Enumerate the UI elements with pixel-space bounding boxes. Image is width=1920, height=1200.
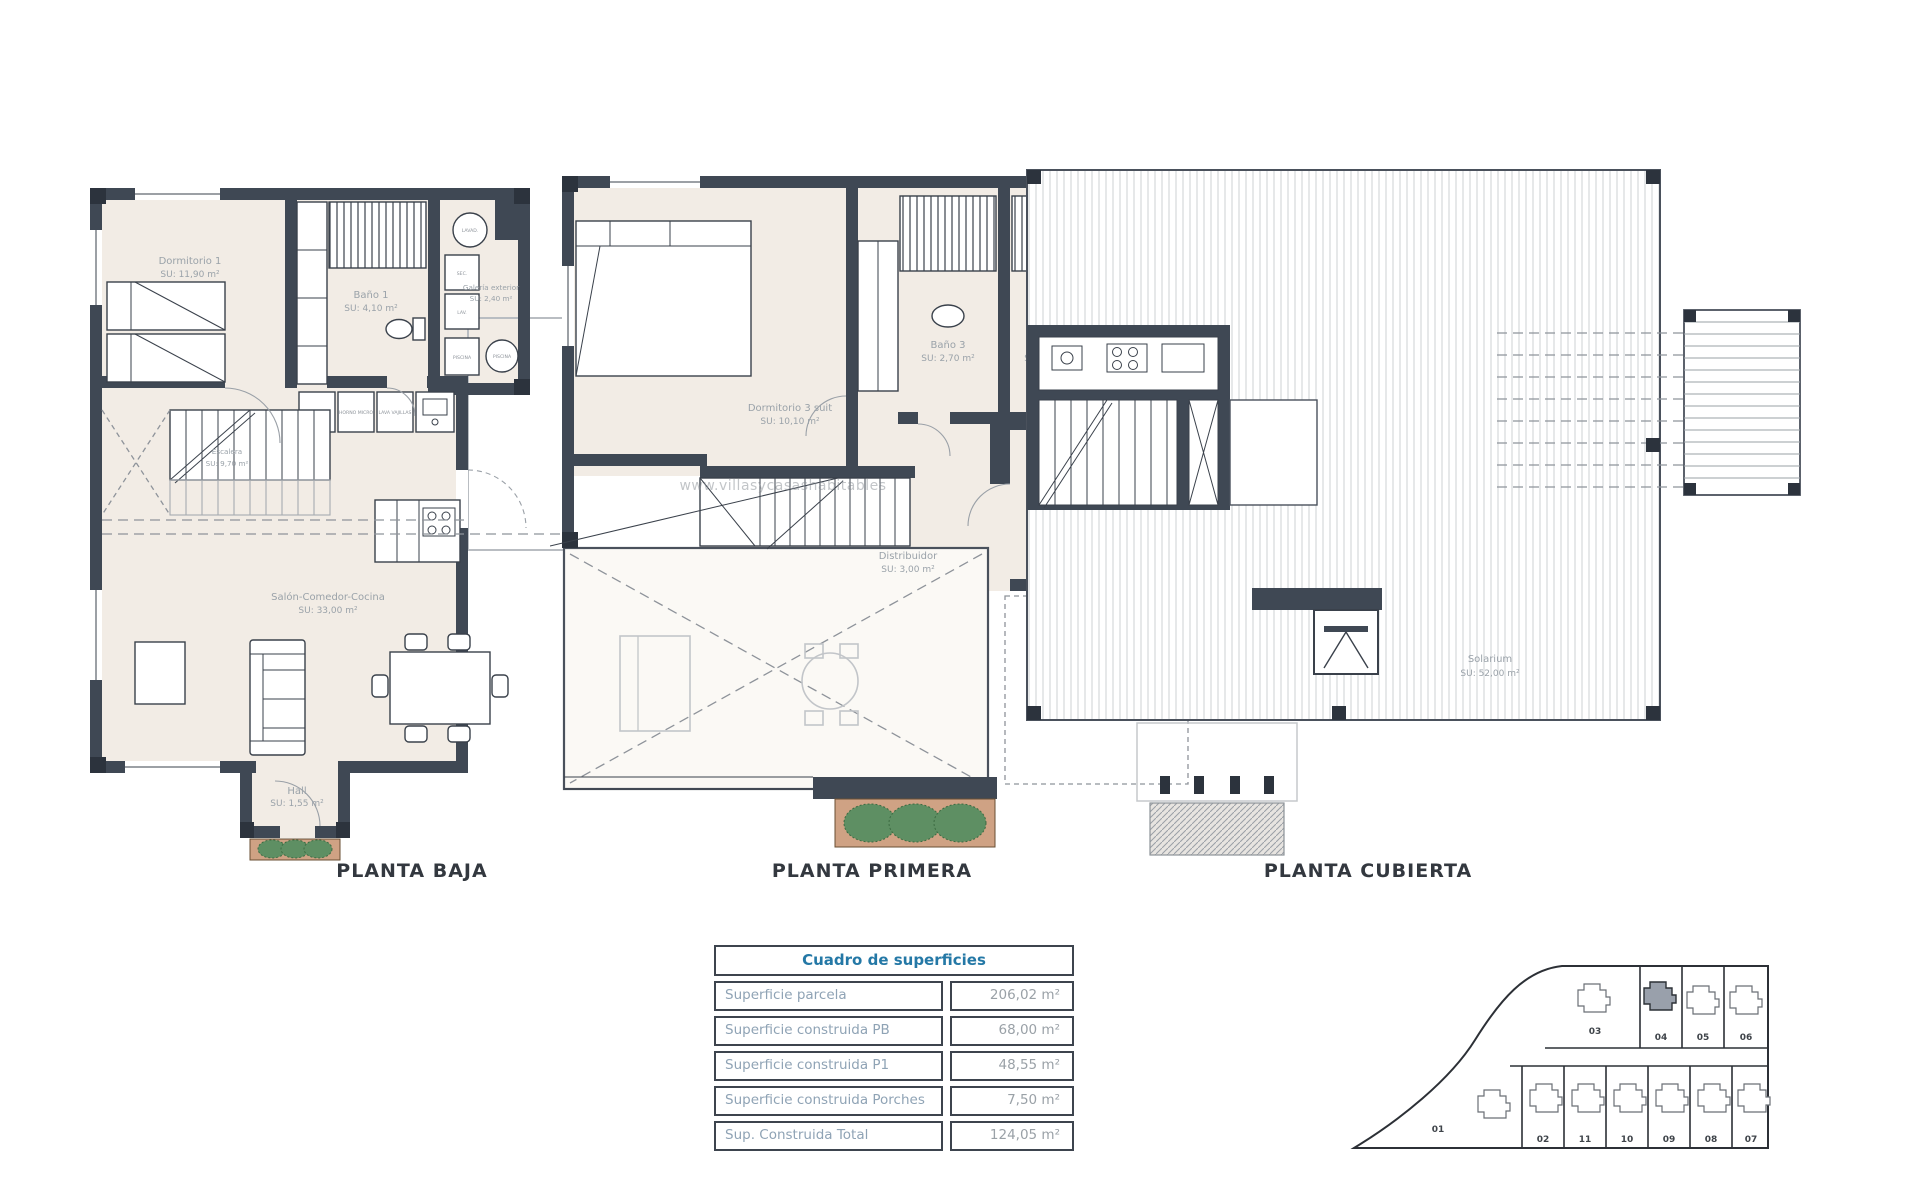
plot-label-03: 03 — [1589, 1027, 1602, 1037]
hall-name: Hall — [287, 786, 306, 797]
row-value: 68,00 m² — [950, 1016, 1074, 1046]
floorplan-sheet: LAVAD. SEC. LAV. PISCINA PISCINA FRIG — [0, 0, 1920, 1200]
closet — [858, 241, 898, 391]
bano1-name: Baño 1 — [354, 290, 389, 301]
stair-opening — [1230, 400, 1317, 505]
planta-baja-title: PLANTA BAJA — [262, 860, 562, 886]
row-value: 48,55 m² — [950, 1051, 1074, 1081]
toilet — [386, 318, 425, 340]
shower-bano3 — [900, 196, 996, 271]
pool-equipment-drum-label: PISCINA — [493, 354, 512, 360]
dormitorio1-name: Dormitorio 1 — [159, 256, 222, 267]
salon-name: Salón-Comedor-Cocina — [271, 591, 385, 603]
plot-label-10: 10 — [1621, 1135, 1634, 1145]
distribuidor-name: Distribuidor — [879, 551, 938, 562]
hall-area: SU: 1,55 m² — [270, 799, 324, 809]
oven-label: HORNO MICRO — [339, 410, 373, 416]
salon-area: SU: 33,00 m² — [298, 606, 358, 616]
plot-label-11: 11 — [1579, 1135, 1592, 1145]
bano1-area: SU: 4,10 m² — [344, 304, 398, 314]
porch-planter — [1137, 723, 1297, 855]
site-plan: 03 04 05 06 01 02 11 10 09 08 07 — [1340, 952, 1780, 1168]
galeria-name: Galería exterior — [463, 283, 519, 292]
surface-table-header: Cuadro de superficies — [714, 945, 1074, 976]
solarium-area: SU: 52,00 m² — [1460, 669, 1520, 679]
sink-bano3 — [932, 305, 964, 327]
escalera-name: Escalera — [212, 447, 242, 456]
plot-label-07: 07 — [1745, 1135, 1758, 1145]
planta-baja-plan: LAVAD. SEC. LAV. PISCINA PISCINA FRIG — [75, 170, 575, 866]
dormitorio3-name: Dormitorio 3 suit — [748, 403, 832, 414]
tv-unit — [135, 642, 185, 704]
plot-label-02: 02 — [1537, 1135, 1550, 1145]
table-row: Superficie construida Porches 7,50 m² — [714, 1086, 1074, 1116]
dormitorio1-area: SU: 11,90 m² — [160, 270, 220, 280]
planta-primera-title: PLANTA PRIMERA — [722, 860, 1022, 886]
laundry-sink-label: LAV. — [457, 310, 467, 316]
dormitorio3-area: SU: 10,10 m² — [760, 417, 820, 427]
row-value: 124,05 m² — [950, 1121, 1074, 1151]
entry-planter — [250, 839, 340, 860]
plot-label-05: 05 — [1697, 1033, 1710, 1043]
planta-cubierta-plan: Solarium SU: 52,00 m² — [1012, 158, 1812, 864]
dishwasher-label: LAVA VAJILLAS — [379, 410, 412, 416]
bano3-name: Baño 3 — [931, 340, 966, 351]
plot-label-08: 08 — [1705, 1135, 1718, 1145]
table-row: Superficie parcela 206,02 m² — [714, 981, 1074, 1011]
plot-label-09: 09 — [1663, 1135, 1676, 1145]
row-label: Superficie construida P1 — [714, 1051, 943, 1081]
washing-machine: LAVAD. — [453, 213, 487, 247]
plot-label-01: 01 — [1432, 1125, 1445, 1135]
planta-cubierta-title: PLANTA CUBIERTA — [1218, 860, 1518, 886]
pool-equipment-label: PISCINA — [453, 355, 472, 361]
table-row: Superficie construida PB 68,00 m² — [714, 1016, 1074, 1046]
wardrobe — [297, 202, 327, 384]
escalera-area: SU: 9,70 m² — [206, 459, 249, 468]
stair-core — [1027, 325, 1230, 510]
row-label: Superficie parcela — [714, 981, 943, 1011]
row-value: 206,02 m² — [950, 981, 1074, 1011]
row-label: Sup. Construida Total — [714, 1121, 943, 1151]
plot-label-04: 04 — [1655, 1033, 1668, 1043]
watermark: www.villasycasashabitables — [648, 478, 918, 494]
row-label: Superficie construida PB — [714, 1016, 943, 1046]
row-label: Superficie construida Porches — [714, 1086, 943, 1116]
galeria-area: SU: 2,40 m² — [470, 294, 513, 303]
solarium-name: Solarium — [1468, 654, 1512, 665]
distribuidor-area: SU: 3,00 m² — [881, 565, 935, 575]
table-row: Superficie construida P1 48,55 m² — [714, 1051, 1074, 1081]
bed-dormitorio3 — [576, 221, 751, 376]
washer-label: LAVAD. — [462, 228, 479, 234]
row-value: 7,50 m² — [950, 1086, 1074, 1116]
pool-equipment-box: PISCINA — [445, 338, 479, 375]
pool-equipment-drum: PISCINA — [486, 340, 518, 372]
dryer-label: SEC. — [457, 271, 468, 277]
bano3-area: SU: 2,70 m² — [921, 354, 975, 364]
plot-label-06: 06 — [1740, 1033, 1753, 1043]
shower — [329, 202, 426, 268]
surface-table: Cuadro de superficies Superficie parcela… — [714, 945, 1074, 1151]
sofa — [250, 640, 305, 755]
kitchen-island — [375, 500, 460, 562]
table-row: Sup. Construida Total 124,05 m² — [714, 1121, 1074, 1151]
